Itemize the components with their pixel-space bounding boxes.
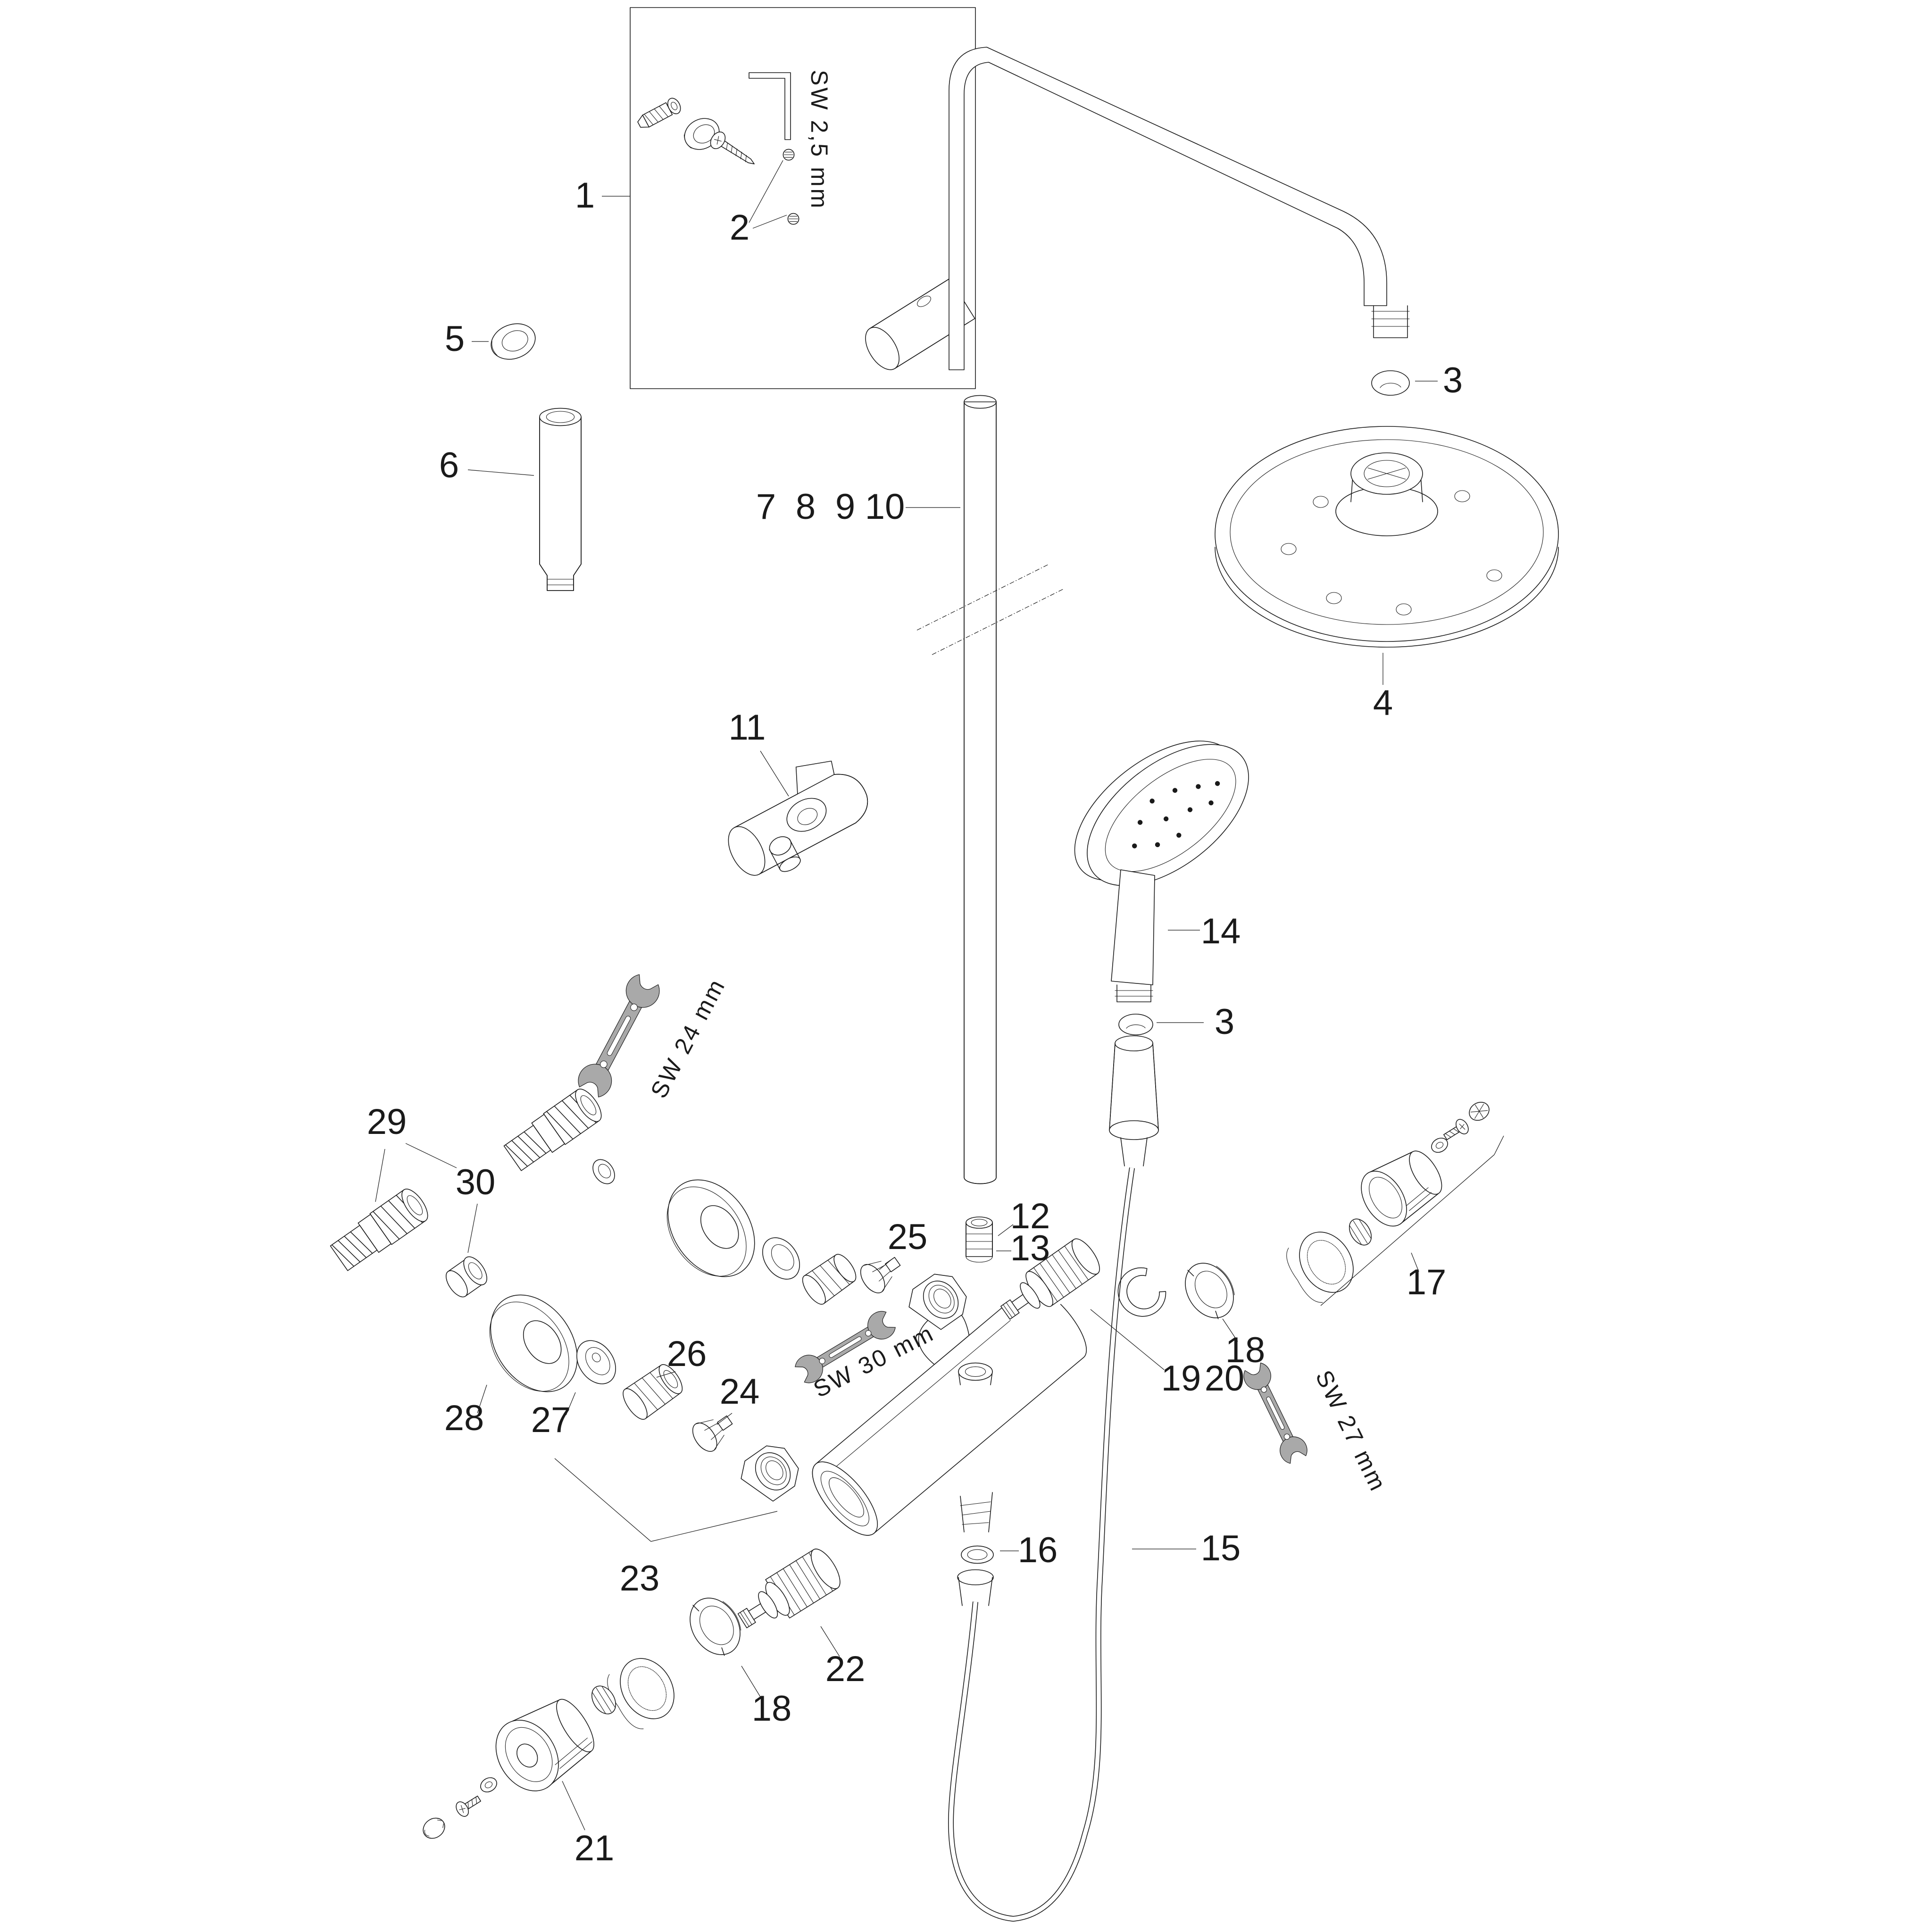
trim-ring-5: [486, 318, 541, 365]
handle-insert-21: [587, 1682, 620, 1718]
seal-disc-upper: [755, 1231, 808, 1286]
part-label-3-top: 3: [1443, 360, 1463, 400]
part-label-2: 2: [730, 208, 749, 248]
part-label-30: 30: [456, 1162, 496, 1202]
part-label-17: 17: [1407, 1262, 1447, 1302]
part-label-1: 1: [575, 175, 595, 216]
extension-tube-6: [540, 408, 581, 591]
part-label-25: 25: [888, 1217, 928, 1257]
allen-key: [749, 73, 791, 140]
leader-line-29: [375, 1149, 385, 1202]
arm-gasket-3: [1372, 371, 1409, 395]
part-label-22: 22: [825, 1649, 866, 1689]
part-label-7: 7: [756, 487, 776, 527]
part-label-20: 20: [1205, 1358, 1245, 1399]
leader-line-2: [749, 160, 783, 223]
part-label-16: 16: [1018, 1530, 1058, 1570]
handle-cap-17: [1466, 1099, 1492, 1124]
part-label-10: 10: [865, 487, 905, 527]
leader-line-21: [562, 1781, 585, 1830]
leader-line-29: [406, 1143, 457, 1168]
escutcheon-upper: [649, 1163, 773, 1294]
part-label-6: 6: [439, 445, 459, 485]
leader-line-23: [555, 1458, 651, 1541]
diverter-cartridge-22: [726, 1543, 847, 1643]
shower-arm: [949, 47, 1387, 370]
part-label-24: 24: [720, 1372, 760, 1412]
wrench-27-size-label: SW 27 mm: [1310, 1366, 1392, 1496]
exploded-parts-diagram: 1234567891011121314315161718192021222324…: [0, 0, 1932, 1932]
diagram-stage: 1234567891011121314315161718192021222324…: [0, 0, 1932, 1932]
part-label-9: 9: [835, 487, 855, 527]
leader-line-11: [760, 751, 789, 796]
handle-cover-17: [1352, 1141, 1451, 1234]
handle-washer-17: [1429, 1135, 1450, 1155]
part-label-27: 27: [531, 1400, 571, 1440]
set-screw-top: [783, 149, 794, 160]
spacer-30a: [441, 1253, 491, 1301]
part-label-4: 4: [1373, 683, 1393, 723]
set-screw-bottom: [788, 213, 799, 224]
handle-washer-21: [478, 1775, 499, 1795]
leader-line-19: [1091, 1309, 1164, 1370]
wall-anchor: [635, 96, 683, 132]
riser-pipe: [917, 395, 1064, 1183]
part-label-13: 13: [1010, 1228, 1050, 1268]
handle-insert-17: [1345, 1215, 1376, 1249]
allen-key-size-label: SW 2,5 mm: [806, 70, 833, 210]
check-valve-nipple-12-13: [966, 1217, 992, 1262]
leader-line-23: [651, 1511, 777, 1541]
part-label-5: 5: [445, 319, 465, 359]
hand-shower-gasket-3: [1119, 1014, 1153, 1035]
part-label-29: 29: [367, 1102, 407, 1142]
union-fitting-29a: [328, 1185, 433, 1274]
part-label-21: 21: [575, 1828, 615, 1868]
outlet-gasket-16: [961, 1546, 993, 1564]
part-label-14: 14: [1201, 911, 1241, 951]
ring-nut-18-right: [1175, 1254, 1244, 1327]
leader-line-2: [753, 215, 787, 228]
part-label-28: 28: [444, 1398, 484, 1438]
seal-ring-30b: [589, 1156, 619, 1188]
leader-line-6: [468, 470, 534, 475]
mounting-screw: [708, 129, 759, 172]
union-fitting-29b: [502, 1085, 606, 1174]
part-label-3-mid: 3: [1215, 1002, 1234, 1042]
handle-hub-21: [601, 1649, 685, 1734]
leader-line-30: [468, 1204, 477, 1253]
overhead-shower: [1215, 426, 1558, 647]
mixer-outlet: [960, 1492, 992, 1532]
part-label-11: 11: [729, 708, 766, 748]
hose-upper-connector: [1109, 1036, 1158, 1166]
part-label-19: 19: [1161, 1358, 1201, 1399]
leader-line-17: [1494, 1136, 1504, 1155]
union-nut-lower: [734, 1438, 805, 1508]
handle-cap-21: [419, 1814, 449, 1842]
handle-body-21: [483, 1688, 605, 1803]
shower-arm-threads: [1372, 306, 1409, 338]
part-label-8: 8: [796, 487, 816, 527]
handle-screw-21: [454, 1792, 483, 1819]
part-label-26: 26: [667, 1334, 707, 1374]
escutcheon-28: [471, 1278, 595, 1409]
part-label-15: 15: [1201, 1528, 1241, 1568]
wrench-sw27: [1241, 1361, 1310, 1466]
part-label-18-left: 18: [752, 1689, 792, 1729]
part-label-23: 23: [620, 1558, 660, 1599]
adapter-upper: [799, 1250, 861, 1307]
outlet-hose-connector: [958, 1570, 993, 1606]
slider-holder-11: [709, 744, 882, 891]
hand-shower-14: [1050, 709, 1274, 1002]
part-number-labels: 1234567891011121314315161718192021222324…: [367, 175, 1463, 1868]
leader-lines: [375, 160, 1504, 1830]
